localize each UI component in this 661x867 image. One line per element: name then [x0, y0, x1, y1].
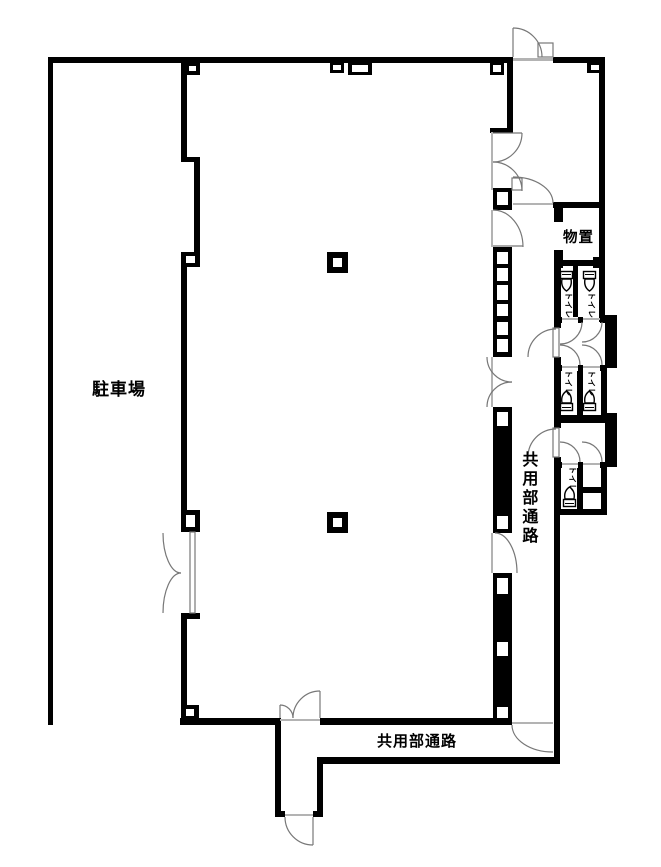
toilet-label: トイレ: [564, 292, 573, 319]
door-swing-arc: [493, 162, 522, 191]
wall: [180, 718, 280, 725]
door-swing-arc: [582, 322, 602, 342]
door-panel: [538, 43, 553, 57]
toilet-label: トイレ: [587, 370, 596, 397]
door-swing-arc: [560, 442, 580, 462]
door-threshold: [280, 719, 320, 721]
door-threshold: [512, 722, 553, 724]
wall: [320, 718, 512, 725]
door-swing-arc: [163, 533, 181, 573]
door-swing-arc: [285, 817, 313, 845]
door-swing-arc: [493, 210, 523, 247]
wall: [194, 157, 200, 252]
door-threshold: [513, 203, 553, 205]
wall-voids-group: [186, 65, 599, 718]
wall: [313, 811, 323, 817]
thresholds-group: [280, 58, 600, 816]
wall: [555, 260, 605, 266]
toilet-icon: [584, 272, 596, 292]
door-threshold: [285, 814, 313, 816]
door-swing-arc: [512, 725, 553, 752]
wall: [599, 57, 605, 322]
wall: [554, 509, 607, 515]
door-swing-arc: [582, 345, 602, 365]
storage-label: 物置: [563, 230, 594, 247]
wall: [605, 413, 617, 467]
door-swing-arc: [495, 533, 517, 573]
wall: [554, 202, 561, 222]
door-swing-arc: [493, 133, 522, 162]
parking-label: 駐車場: [92, 380, 146, 400]
door-swing-arc: [582, 442, 602, 462]
door-swing-arc: [280, 705, 293, 718]
wall: [554, 515, 560, 764]
wall: [275, 718, 281, 817]
wall: [554, 317, 562, 323]
door-threshold: [513, 58, 553, 61]
wall: [577, 371, 583, 415]
door-swing-arc: [487, 382, 512, 407]
toilet-label: トイレ: [564, 370, 573, 397]
wall: [181, 613, 187, 705]
walls-group: [48, 57, 617, 817]
wall: [601, 368, 607, 415]
wall: [578, 365, 583, 371]
wall: [275, 811, 285, 817]
door-panel: [512, 178, 522, 190]
wall: [318, 757, 560, 764]
wall: [48, 57, 53, 725]
wall: [317, 757, 323, 817]
floor-plan-drawing: [0, 0, 661, 867]
wall: [577, 468, 583, 515]
wall: [601, 465, 607, 515]
door-swing-arc: [293, 691, 320, 718]
toilet-label: トイレ: [568, 466, 577, 493]
toilet-icon: [561, 272, 573, 292]
door-swing-arc: [163, 573, 181, 613]
door-frame: [190, 532, 195, 613]
door-swing-arc: [560, 345, 580, 365]
wall: [507, 57, 513, 133]
door-swing-arc: [528, 329, 556, 357]
wall: [181, 267, 187, 510]
wall: [573, 265, 578, 317]
wall: [578, 462, 583, 468]
toilet-label: トイレ: [587, 292, 596, 319]
wall: [554, 365, 562, 371]
floor-plan: 駐車場 物置 共用部通路 共用部通路 トイレ トイレ トイレ トイレ トイレ: [0, 0, 661, 867]
wall: [48, 57, 513, 63]
wall: [554, 462, 562, 468]
corridor-bottom-label: 共用部通路: [377, 733, 457, 750]
door-swing-arc: [560, 322, 582, 344]
wall: [605, 315, 617, 368]
door-leaf: [553, 328, 559, 357]
wall: [554, 250, 561, 328]
corridor-side-label: 共用部通路: [518, 451, 536, 546]
wall: [554, 415, 607, 423]
door-leaf: [553, 428, 559, 457]
door-swing-arc: [487, 357, 512, 382]
